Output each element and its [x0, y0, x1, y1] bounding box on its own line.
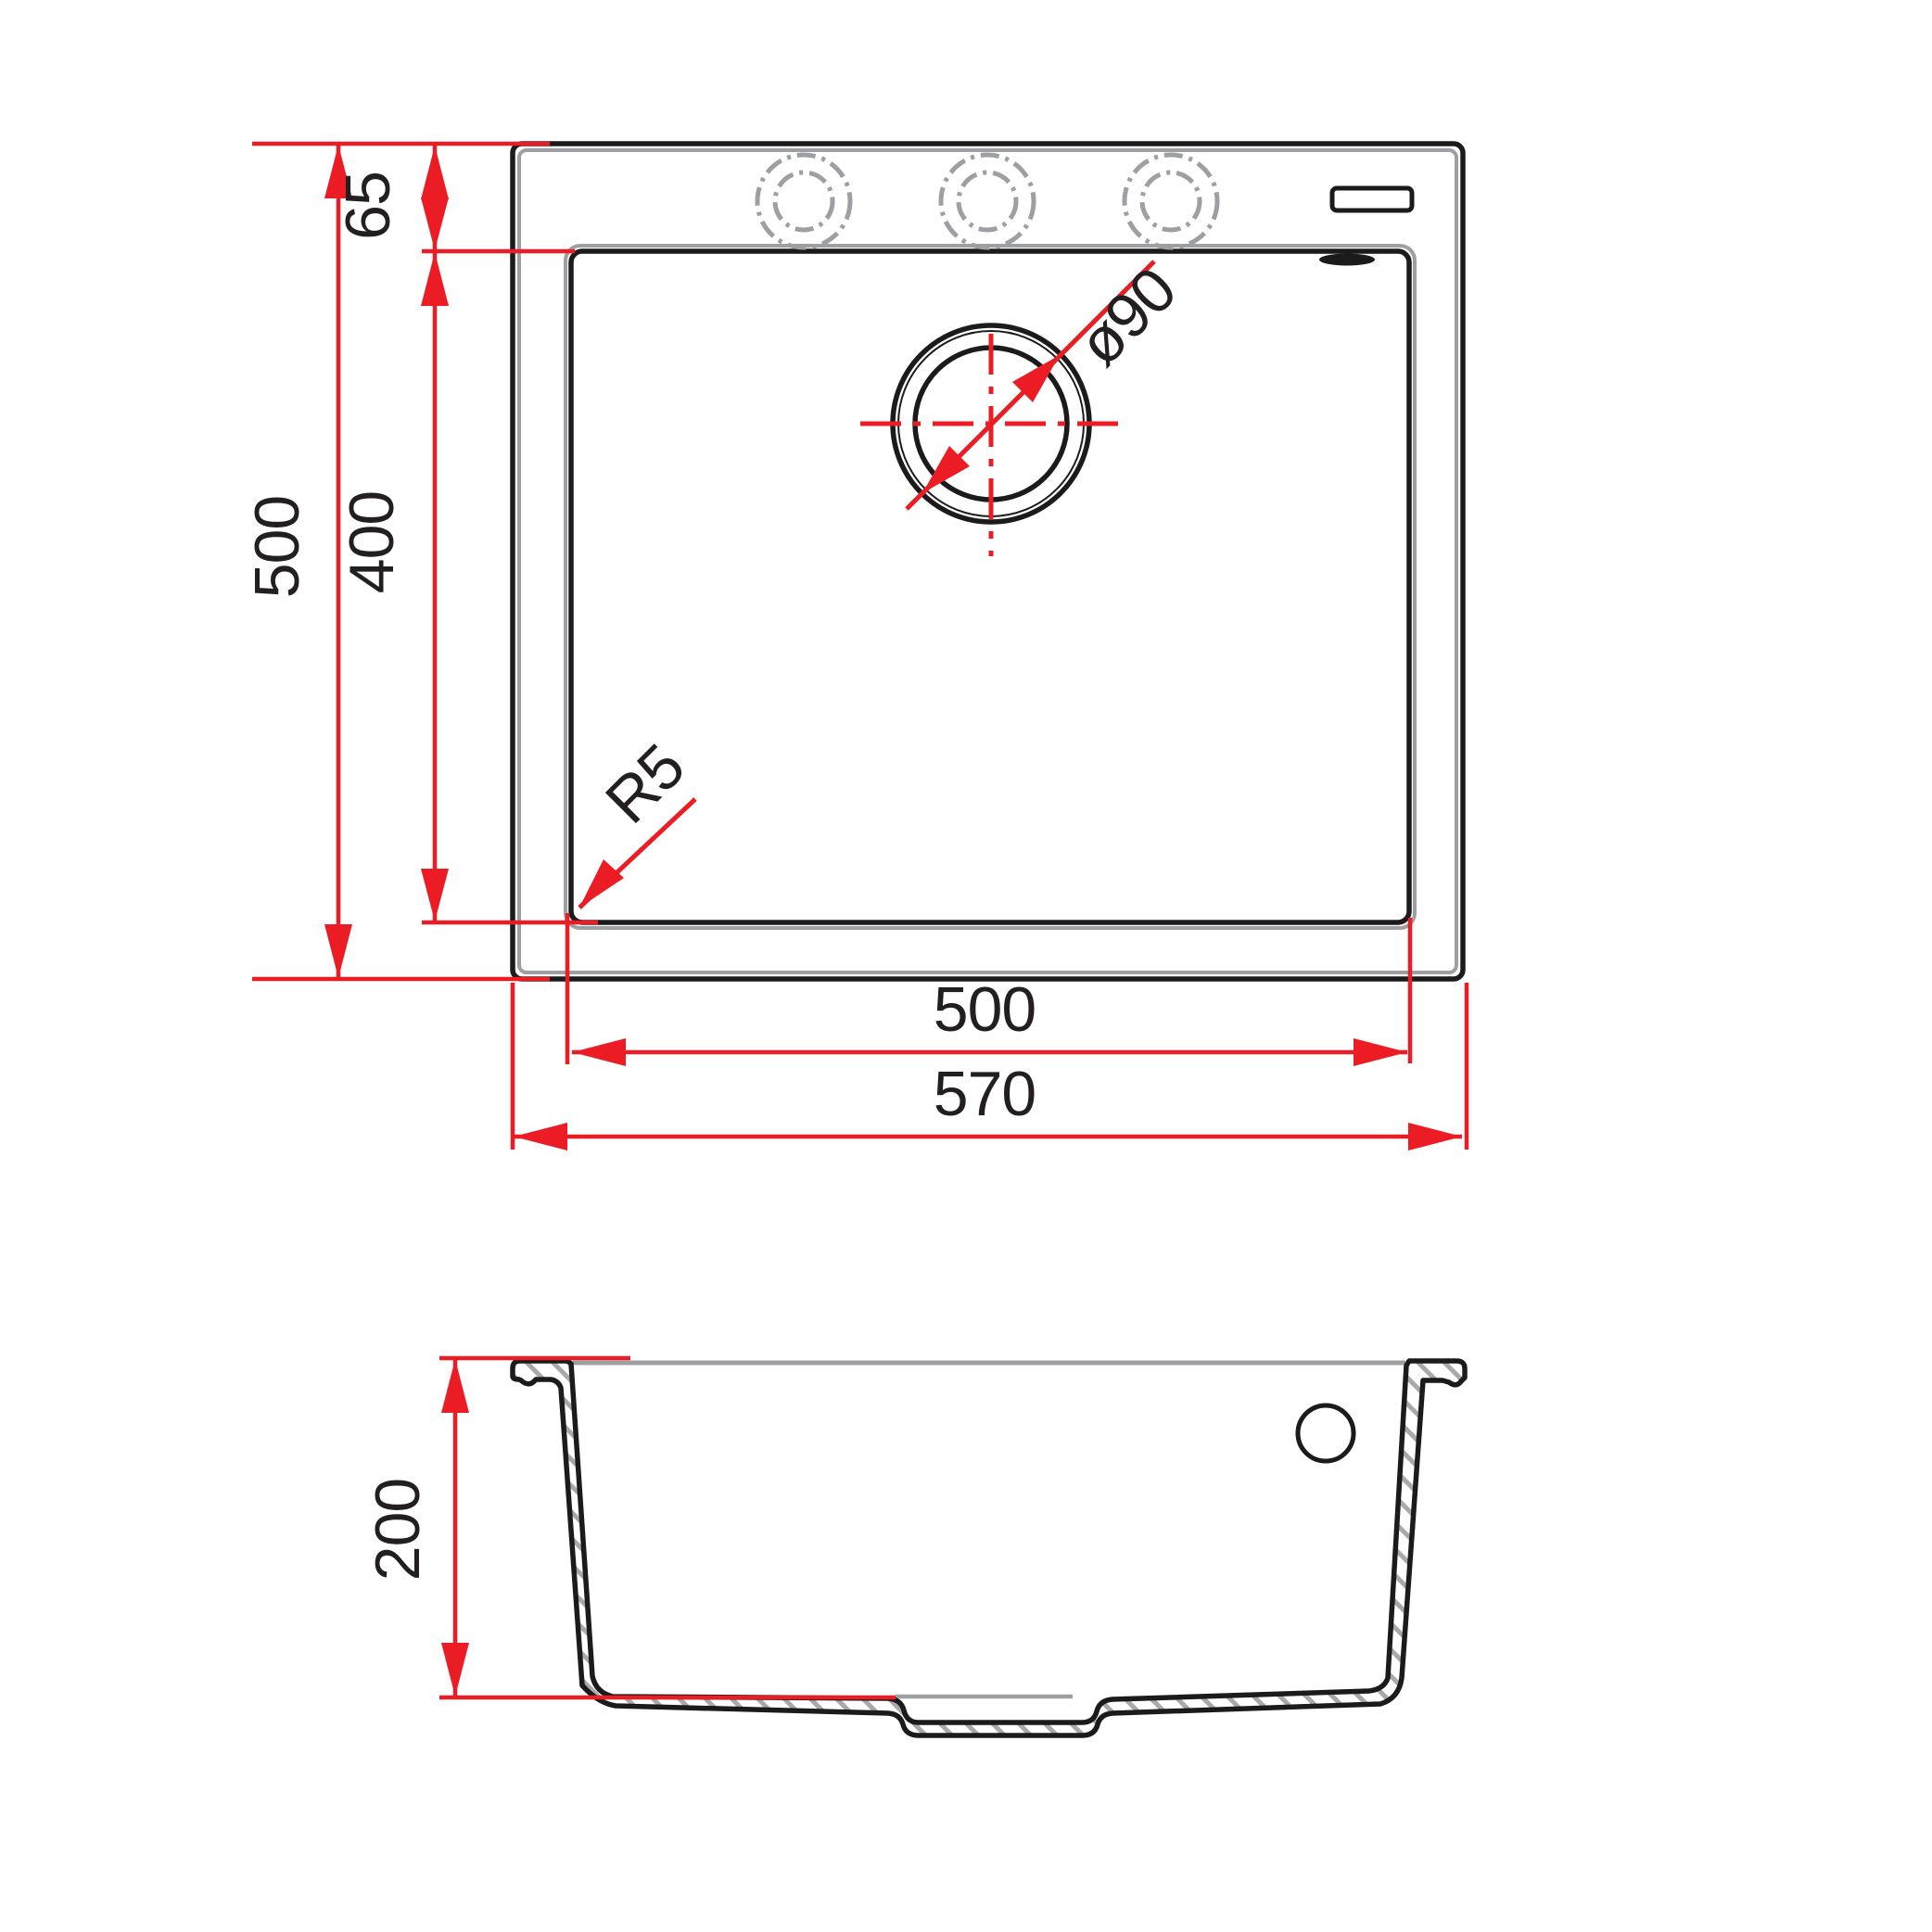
- dim-drain-diameter-label: ø90: [1064, 254, 1188, 378]
- sink-dimension-drawing: 65 500 400 500 570 ø90 R5 200: [0, 0, 1932, 1932]
- arrowhead: [572, 1038, 626, 1066]
- dim-overall-width-label: 570: [934, 1059, 1036, 1129]
- faucet-hole-icon: [959, 172, 1016, 230]
- faucet-holes: [757, 155, 1217, 248]
- arrowhead: [421, 197, 449, 250]
- faucet-hole-icon: [1142, 172, 1200, 230]
- arrowhead: [514, 1123, 567, 1150]
- dim-basin-width-label: 500: [934, 974, 1036, 1045]
- faucet-hole-icon: [775, 172, 833, 230]
- section-drain-hole-icon: [1298, 1405, 1354, 1461]
- plan-view: 65 500 400 500 570 ø90 R5: [242, 144, 1467, 1150]
- arrowhead: [324, 924, 352, 978]
- arrowhead: [1408, 1123, 1462, 1150]
- section-dimension-graphics: [439, 1358, 896, 1697]
- overflow-slot-icon: [1319, 254, 1375, 266]
- arrowhead: [1354, 1038, 1407, 1066]
- dim-overall-height-label: 500: [242, 496, 312, 598]
- drawing-canvas: 65 500 400 500 570 ø90 R5 200: [0, 0, 1932, 1932]
- dim-bowl-depth-label: 200: [362, 1479, 433, 1581]
- arrowhead: [441, 1359, 469, 1413]
- arrowhead: [579, 859, 624, 908]
- arrowhead: [441, 1643, 469, 1697]
- plan-dimension-graphics: [252, 144, 1467, 1150]
- rim-plate: [1332, 188, 1412, 210]
- arrowhead: [421, 869, 449, 922]
- section-view: 200: [362, 1358, 1465, 1735]
- section-body: [513, 1361, 1465, 1735]
- dim-corner-radius-label: R5: [592, 731, 698, 837]
- plan-rim-inner-line: [519, 150, 1456, 972]
- faucet-hole-icon: [1125, 155, 1217, 248]
- plan-outer-edge: [513, 144, 1463, 979]
- faucet-hole-icon: [757, 155, 850, 248]
- arrowhead: [421, 146, 449, 199]
- dim-basin-height-label: 400: [337, 491, 407, 593]
- arrowhead: [421, 252, 449, 306]
- dim-top-offset-label: 65: [333, 172, 403, 240]
- faucet-hole-icon: [941, 155, 1034, 248]
